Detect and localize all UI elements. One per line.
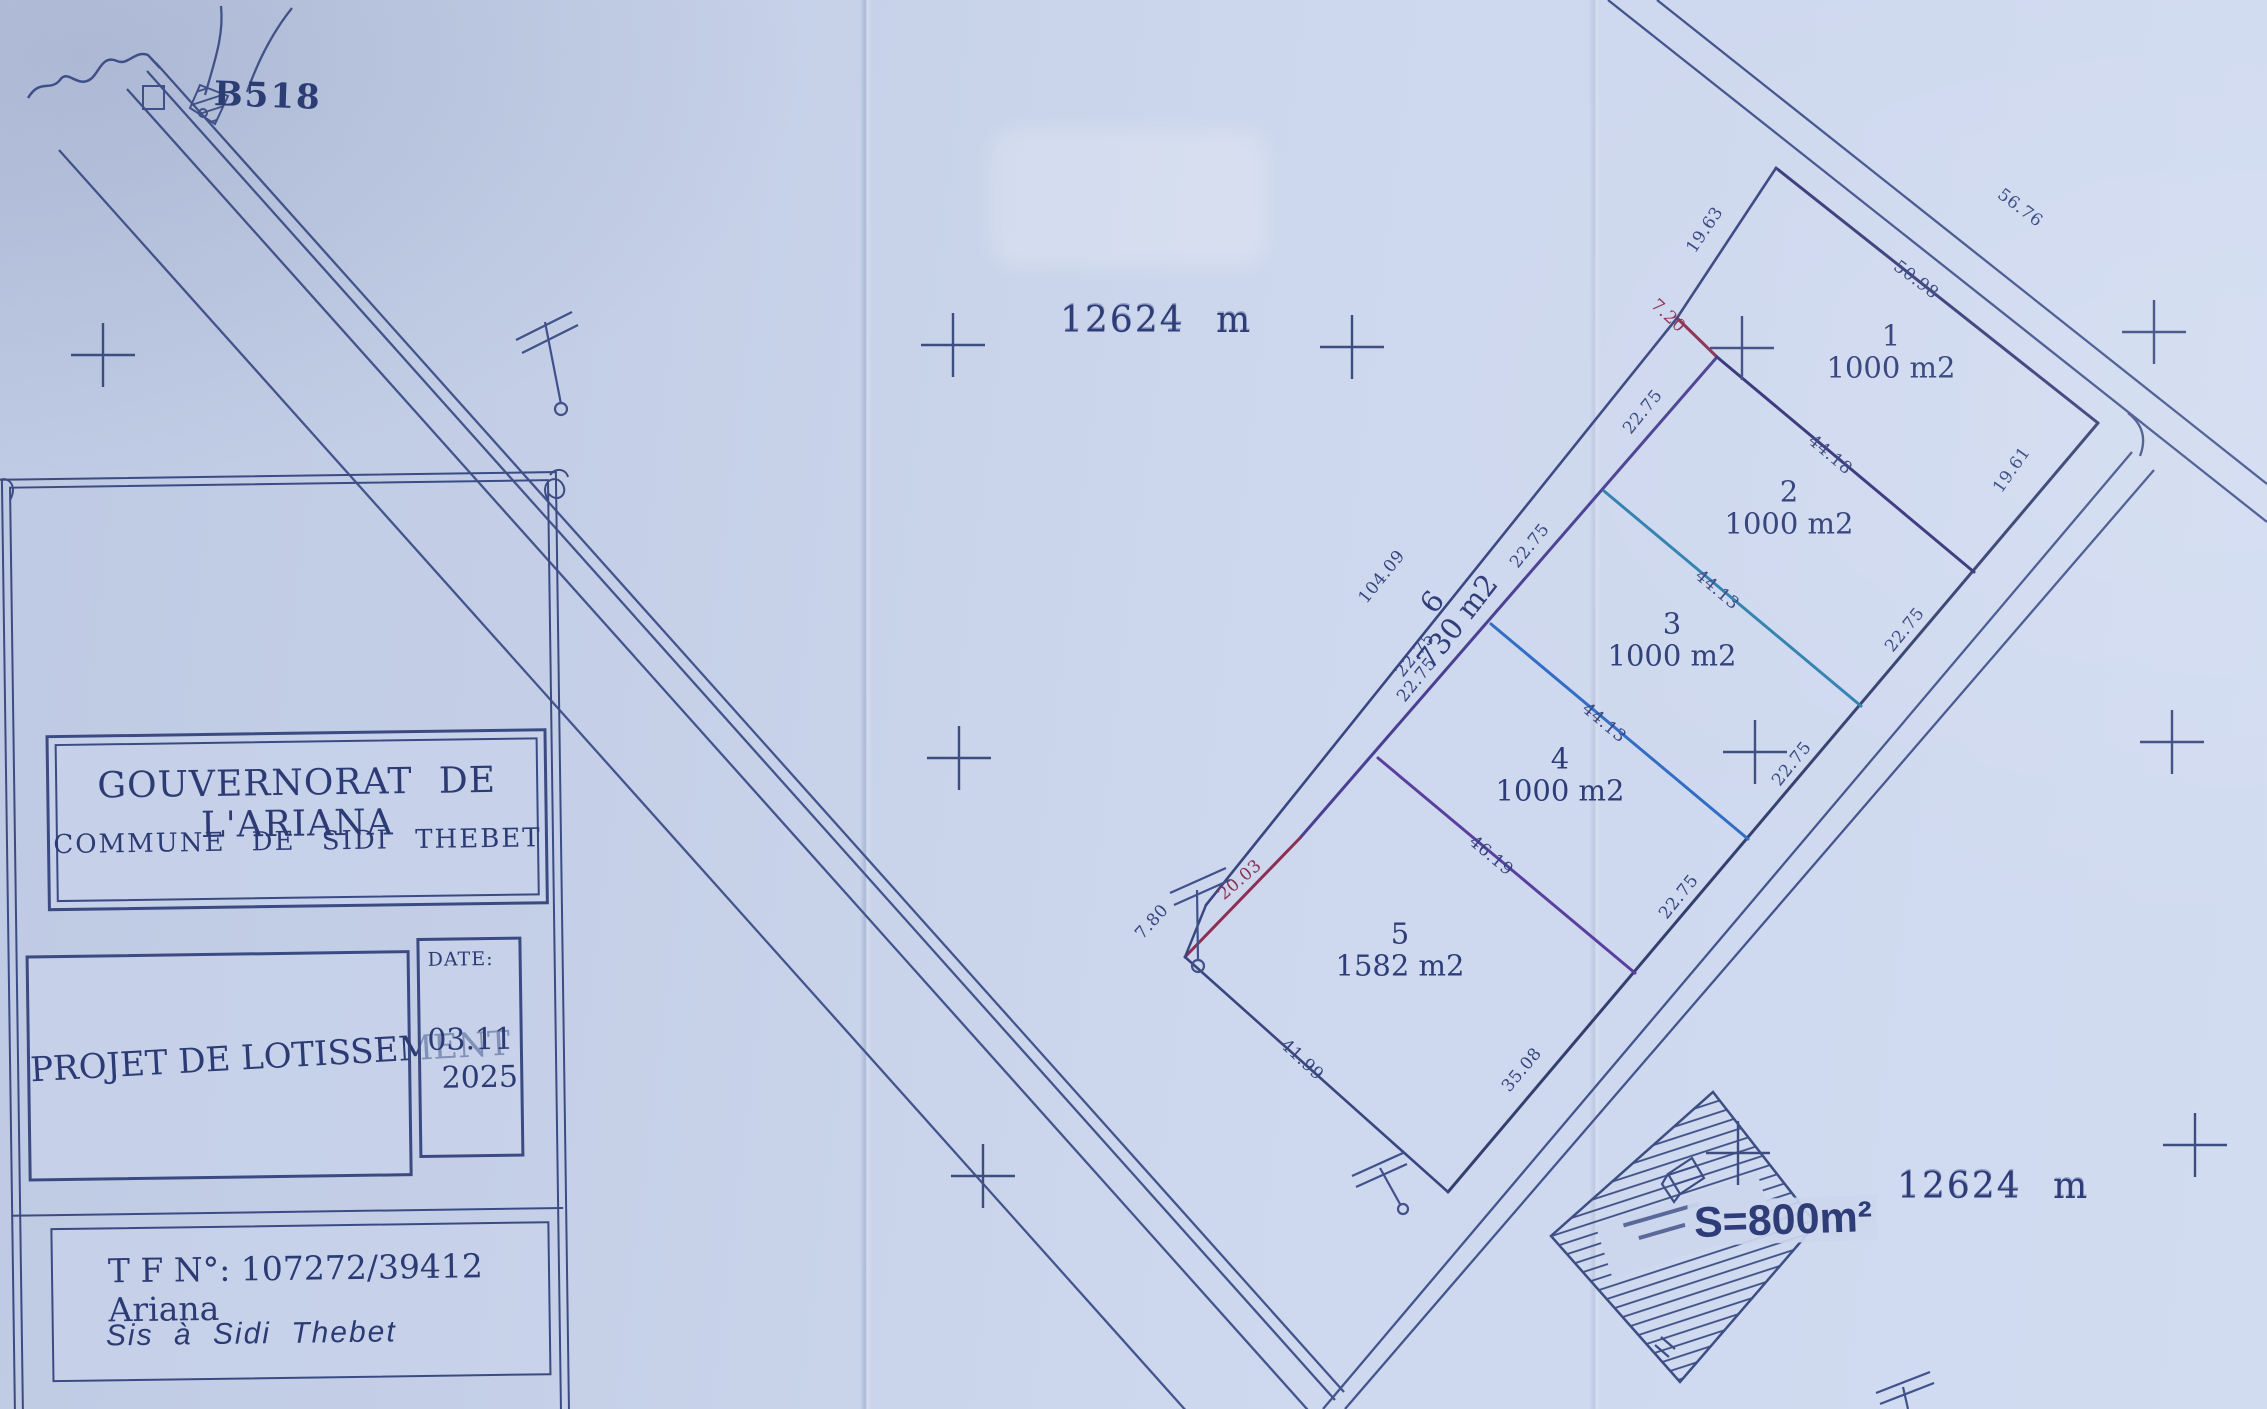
lot-area: 1000 m2 [1608, 640, 1737, 672]
red-boundary-segment [1185, 838, 1300, 957]
lot-number: 3 [1608, 608, 1737, 640]
title-block: GOUVERNORAT DE L'ARIANA COMMUNE DE SIDI … [0, 0, 910, 1409]
land-title-box: T F N°: 107272/39412 Ariana Sis à Sidi T… [50, 1221, 551, 1382]
lot-4-label: 41000 m2 [1496, 743, 1625, 808]
survey-cross-icon [2140, 710, 2204, 774]
lot-5-label: 51582 m2 [1336, 918, 1465, 983]
survey-cross-icon [1710, 316, 1774, 380]
boundary-length-top: 12624 m [1060, 300, 1252, 341]
power-pole-icon [1352, 1153, 1408, 1214]
date-box: DATE: 03.11 2025 [416, 937, 524, 1158]
lot-number: 4 [1496, 743, 1625, 775]
location-note: Sis à Sidi Thebet [106, 1315, 397, 1353]
survey-cross-icon [2122, 300, 2186, 364]
survey-cross-icon [951, 1144, 1015, 1208]
lot-boundaries [1185, 168, 2098, 1192]
survey-cross-icon [921, 313, 985, 377]
boundary-length-bottom: 12624 m [1897, 1166, 2089, 1207]
survey-cross-icon [1320, 315, 1384, 379]
lot-area: 1000 m2 [1725, 508, 1854, 540]
date-year: 2025 [421, 1060, 520, 1096]
lot-number: 2 [1725, 476, 1854, 508]
lot-area: 1000 m2 [1827, 352, 1956, 384]
date-month: 03.11 [421, 1022, 520, 1058]
lot-area: 1582 m2 [1336, 950, 1465, 982]
survey-cross-icon [927, 726, 991, 790]
survey-cross-icon [2163, 1113, 2227, 1177]
road-northeast [1608, 0, 2267, 522]
lot-number: 1 [1827, 320, 1956, 352]
lot-2-label: 21000 m2 [1725, 476, 1854, 541]
lot-3-label: 31000 m2 [1608, 608, 1737, 673]
lot-1-label: 11000 m2 [1827, 320, 1956, 385]
power-pole-icon [1876, 1372, 1934, 1409]
plan-photo-page: B518 12624 m 12624 m S=800m² 11000 m2210… [0, 0, 2267, 1409]
equipment-area-label: S=800m² [1687, 1195, 1879, 1247]
project-title: PROJET DE LOTISSEMENT [29, 1029, 409, 1090]
lot-area: 1000 m2 [1496, 775, 1625, 807]
date-label: DATE: [428, 948, 494, 971]
lot-number: 5 [1336, 918, 1465, 950]
authority-box: GOUVERNORAT DE L'ARIANA COMMUNE DE SIDI … [45, 728, 548, 911]
project-box: PROJET DE LOTISSEMENT [26, 950, 413, 1181]
